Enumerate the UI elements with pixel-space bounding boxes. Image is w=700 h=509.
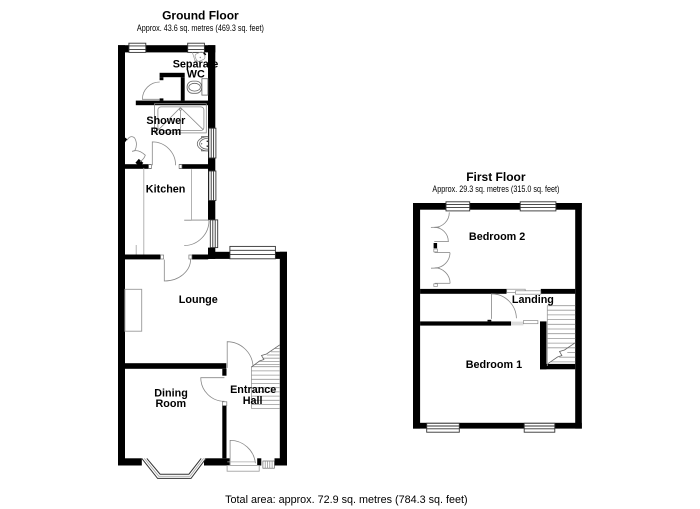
svg-text:Approx. 29.3 sq. metres (315.0: Approx. 29.3 sq. metres (315.0 sq. feet) — [432, 184, 559, 194]
svg-text:Bedroom 2: Bedroom 2 — [469, 231, 525, 243]
svg-text:Landing: Landing — [512, 294, 554, 306]
svg-text:Room: Room — [156, 398, 187, 410]
svg-text:WC: WC — [187, 69, 205, 81]
svg-text:Kitchen: Kitchen — [146, 184, 186, 196]
svg-text:Total area: approx. 72.9 sq. m: Total area: approx. 72.9 sq. metres (784… — [225, 494, 467, 506]
svg-text:First Floor: First Floor — [466, 170, 526, 184]
svg-text:Bedroom 1: Bedroom 1 — [466, 359, 522, 371]
svg-text:Room: Room — [151, 126, 182, 138]
svg-text:Hall: Hall — [243, 395, 263, 407]
svg-text:Approx. 43.6 sq. metres (469.3: Approx. 43.6 sq. metres (469.3 sq. feet) — [137, 23, 264, 33]
svg-text:Lounge: Lounge — [179, 294, 218, 306]
svg-text:Ground Floor: Ground Floor — [162, 8, 239, 22]
